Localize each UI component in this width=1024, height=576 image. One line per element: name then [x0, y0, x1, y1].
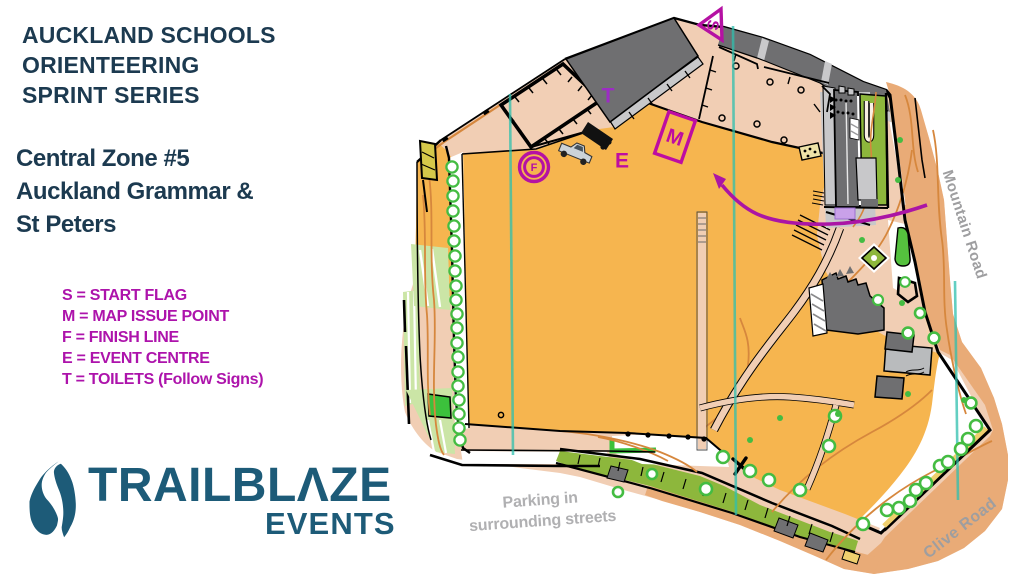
- svg-text:F: F: [531, 162, 538, 174]
- svg-text:E: E: [615, 150, 629, 173]
- svg-text:Parking in: Parking in: [502, 489, 578, 511]
- svg-text:surrounding streets: surrounding streets: [469, 508, 617, 535]
- svg-text:T: T: [602, 85, 615, 108]
